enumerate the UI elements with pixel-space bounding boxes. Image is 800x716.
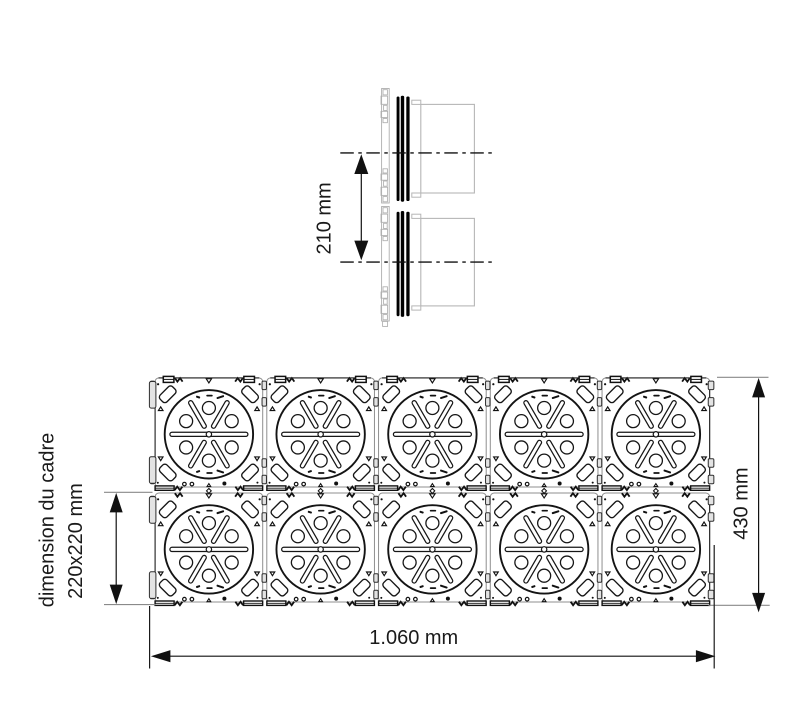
svg-text:430 mm: 430 mm xyxy=(731,467,753,539)
svg-text:dimension du cadre: dimension du cadre xyxy=(37,433,59,608)
svg-text:1.060 mm: 1.060 mm xyxy=(369,627,458,649)
svg-text:210 mm: 210 mm xyxy=(314,182,336,254)
svg-text:220x220 mm: 220x220 mm xyxy=(65,483,87,599)
